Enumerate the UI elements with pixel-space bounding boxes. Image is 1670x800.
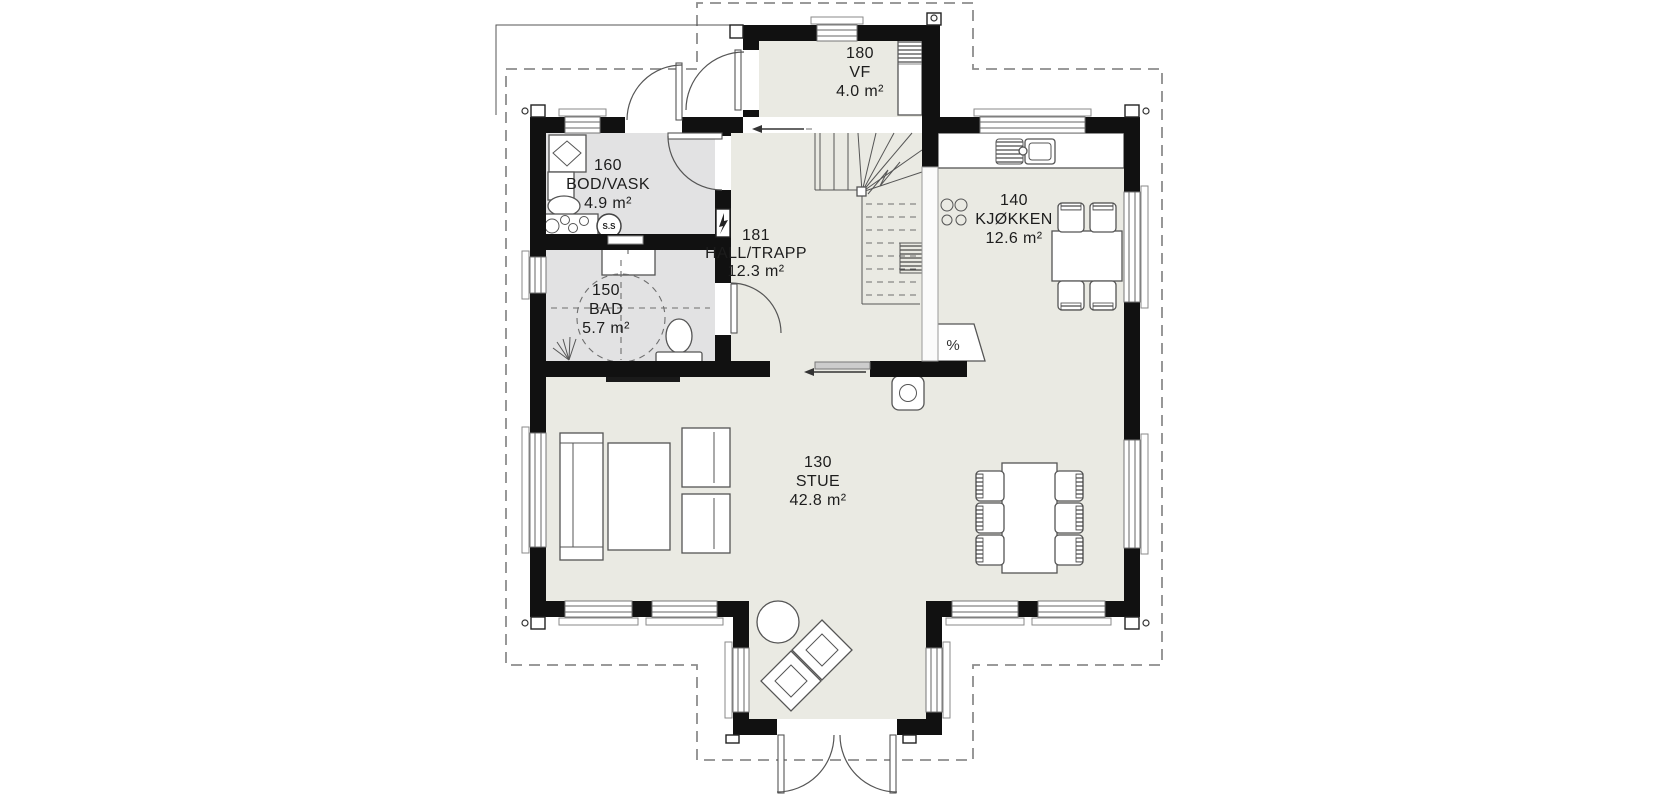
window: [1124, 186, 1148, 308]
room-name: STUE: [796, 473, 840, 490]
kitchen-chair: [1058, 203, 1084, 232]
room-name: HALL/TRAPP: [705, 245, 807, 262]
terrace-double-door: [777, 719, 897, 793]
corner-marker: [1143, 620, 1149, 626]
kitchen-chair: [1090, 203, 1116, 232]
window: [1032, 601, 1111, 625]
dining-chair: [1055, 503, 1083, 533]
kitchen-chair: [1090, 281, 1116, 310]
room-number: 181: [742, 227, 770, 244]
window: [725, 642, 749, 718]
corner-marker: [522, 620, 528, 626]
laundry-counter: [541, 214, 598, 237]
room-area: 12.6 m²: [985, 230, 1042, 247]
room-name: KJØKKEN: [975, 211, 1053, 228]
entry-arrow-vf: [752, 125, 816, 133]
room-number: 160: [594, 157, 622, 174]
corner-marker: [1143, 108, 1149, 114]
armchair: [682, 428, 730, 487]
room-area: 12.3 m²: [727, 263, 784, 280]
coffee-table: [608, 443, 670, 550]
bod-bad-wall-inset: [608, 236, 643, 244]
window: [559, 601, 638, 625]
room-area: 5.7 m²: [582, 320, 630, 337]
sofa: [560, 433, 603, 560]
water-heater-label: S.S: [603, 222, 617, 231]
room-name: BAD: [589, 301, 623, 318]
room-number: 180: [846, 45, 874, 62]
room-number: 150: [592, 282, 620, 299]
kitchen-divider-band: [922, 167, 938, 361]
floor-plan-canvas: % S.S: [0, 0, 1670, 800]
dining-table-set: [976, 463, 1083, 573]
porch-door: [625, 63, 682, 133]
window: [946, 601, 1024, 625]
dining-chair: [976, 535, 1004, 565]
dining-chair: [1055, 535, 1083, 565]
porch-slab-outline: [496, 25, 743, 115]
floor-plan-page: % S.S: [0, 0, 1670, 800]
dining-chair: [1055, 471, 1083, 501]
wall-hall-stue: [870, 361, 967, 377]
corner-marker: [931, 15, 937, 21]
dining-chair: [976, 471, 1004, 501]
window: [646, 601, 723, 625]
round-table: [757, 601, 799, 643]
wall-vf-right: [922, 25, 940, 117]
wall-kitchen-divider-top: [922, 117, 938, 167]
window: [559, 109, 606, 133]
kitchen-sink: [996, 139, 1055, 164]
room-name: BOD/VASK: [566, 176, 650, 193]
room-number: 140: [1000, 192, 1028, 209]
stair-shaft: [900, 243, 922, 273]
room-area: 42.8 m²: [789, 492, 846, 509]
window: [522, 427, 546, 553]
dining-chair: [976, 503, 1004, 533]
window: [926, 642, 950, 718]
armchair: [682, 494, 730, 553]
electrical-panel: [716, 209, 730, 237]
kitchen-chair: [1058, 281, 1084, 310]
room-number: 130: [804, 454, 832, 471]
corner-marker: [522, 108, 528, 114]
dishwasher-symbol: %: [946, 337, 959, 354]
window: [522, 251, 546, 299]
window: [811, 17, 863, 41]
wall-bad-bottom: [546, 361, 770, 377]
wood-stove: [892, 372, 924, 410]
room-area: 4.0 m²: [836, 83, 884, 100]
room-name: VF: [849, 64, 870, 81]
window: [1124, 434, 1148, 554]
utility-appliance: [549, 135, 586, 172]
window: [974, 109, 1091, 133]
room-area: 4.9 m²: [584, 195, 632, 212]
vf-closet: [898, 40, 922, 115]
utility-sink: [548, 196, 580, 216]
